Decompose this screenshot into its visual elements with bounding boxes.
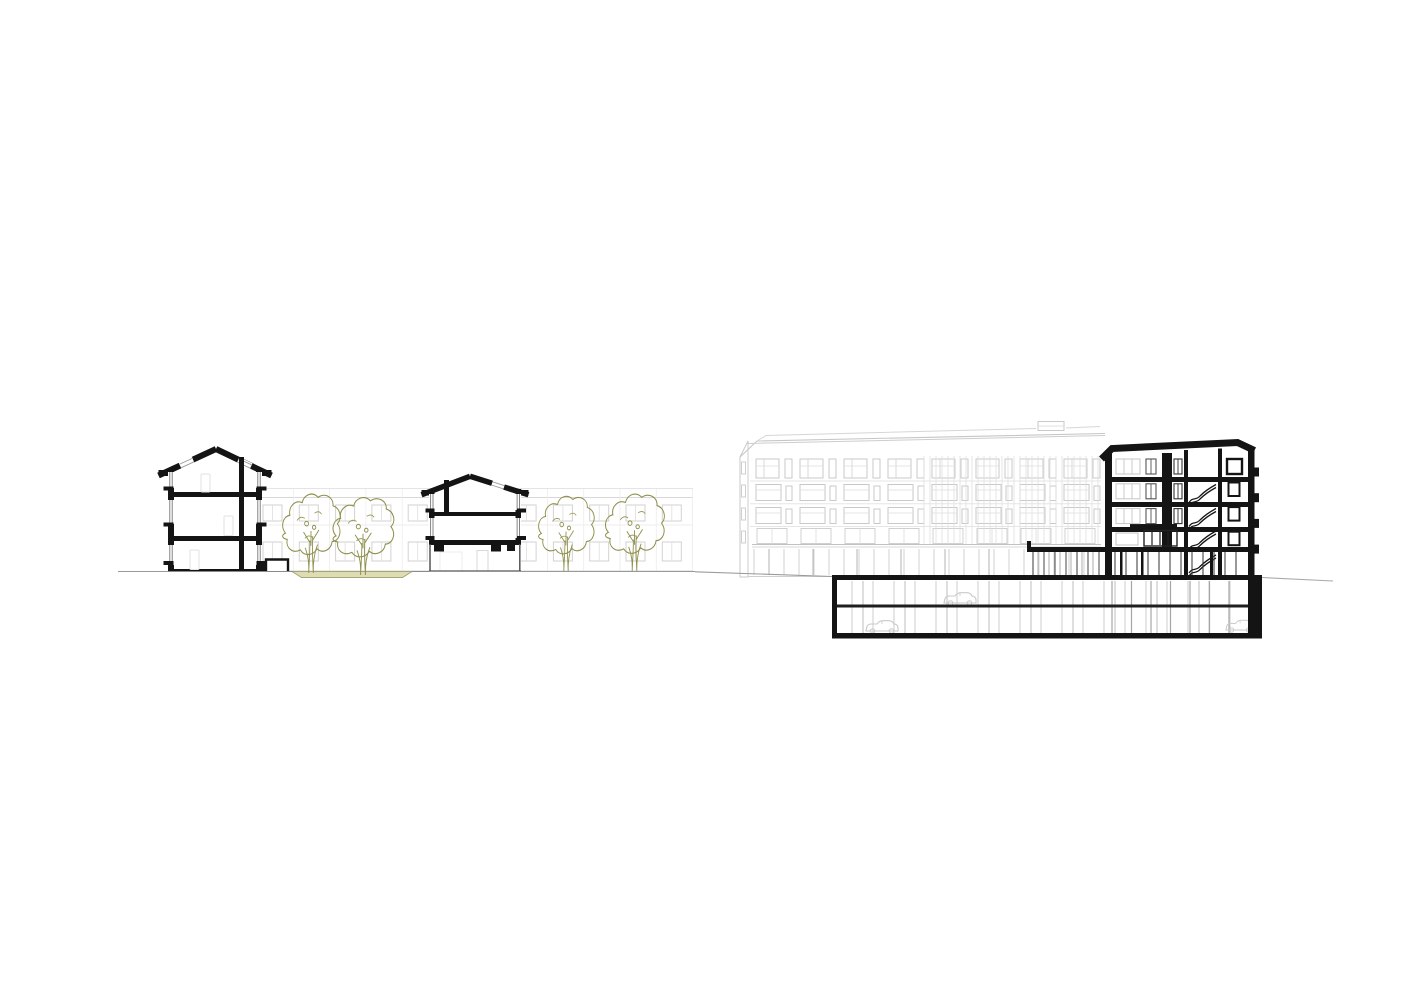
middle-building-slab-stub <box>507 545 515 551</box>
big-building-window-row1-b <box>785 459 792 478</box>
left-building-window-gap <box>256 472 262 488</box>
big-building-window-row3-a <box>1020 508 1045 524</box>
big-building-window-row3-b <box>786 509 792 524</box>
right-building-wall-cut <box>1248 447 1255 638</box>
big-building-window-row3-b <box>1006 509 1012 524</box>
ground-line-right <box>1262 578 1333 582</box>
big-building-window-row2-a <box>844 485 869 501</box>
tree <box>539 496 595 571</box>
middle-building-sill-block <box>426 509 435 513</box>
big-building-window-row2-a <box>800 485 825 501</box>
left-building-interior-wall <box>239 497 244 569</box>
tree-berry <box>567 526 570 530</box>
ground-slope-line <box>695 572 832 577</box>
big-building-window-row3-b <box>830 509 836 524</box>
tree-berry <box>312 525 315 529</box>
left-building-base-slab <box>168 569 262 572</box>
left-building-sill-block <box>164 561 174 565</box>
big-building-window-row2-b <box>918 486 924 501</box>
underground-garage <box>832 576 1262 639</box>
big-building-window-row1-b <box>873 459 880 478</box>
left-building-window-gap <box>168 472 174 488</box>
big-building-window-row2-b <box>1094 486 1100 501</box>
tree <box>606 494 665 571</box>
tree-trunk <box>627 529 643 571</box>
section-drawing <box>0 0 1416 1000</box>
left-building-sill-block <box>257 487 267 491</box>
left-building-sill-block <box>257 523 267 527</box>
big-building-window-row1-a <box>844 459 867 478</box>
middle-building-slab-stub <box>434 545 444 552</box>
big-building-window-row2-b <box>786 486 792 501</box>
stair-core-wall <box>1218 449 1222 578</box>
middle-building-floor-slab <box>429 512 521 516</box>
left-building-section <box>159 449 289 572</box>
right-building-small-window <box>1229 483 1240 497</box>
tree-trunk <box>304 530 319 573</box>
big-building-window-row1-a <box>932 459 955 478</box>
big-building-window-row3-a <box>844 508 869 524</box>
big-building-window-row1-a <box>756 459 779 478</box>
middle-building-interior-wall <box>444 480 449 512</box>
big-building-window-row3-a <box>888 508 913 524</box>
big-building-window-row3-b <box>1050 509 1056 524</box>
big-building-window-row1-b <box>1005 459 1012 478</box>
big-building-window-row3-b <box>962 509 968 524</box>
groundfloor-door-frame <box>1210 552 1213 575</box>
left-building-floor-slab <box>168 536 262 541</box>
big-building-window-row2-b <box>962 486 968 501</box>
big-building-window-row3-a <box>800 508 825 524</box>
big-building-window-row2-b <box>1006 486 1012 501</box>
tree-canopy-scribble <box>348 515 374 541</box>
right-building-topfloor-window <box>1227 459 1242 474</box>
middle-building-section <box>422 476 529 571</box>
garage-mid-slab <box>837 605 1252 608</box>
big-building-window-row3-b <box>918 509 924 524</box>
architectural-section-canvas <box>0 0 1416 1000</box>
big-building-window-row1-a <box>800 459 823 478</box>
big-building-window-row1-b <box>1093 459 1100 478</box>
entrance-stoop <box>266 560 288 572</box>
tree-berry <box>560 522 564 526</box>
right-building-balcony-stub <box>1255 545 1260 554</box>
big-building-window-row2-b <box>874 486 880 501</box>
middle-building-floor-slab <box>429 540 521 545</box>
planter-bed <box>292 572 412 578</box>
big-building-window-row3-b <box>1094 509 1100 524</box>
left-building-interior-wall <box>239 457 244 492</box>
left-building-eave-block <box>262 470 272 476</box>
big-building-window-row1-b <box>917 459 924 478</box>
groundfloor-door-frame <box>1141 552 1144 575</box>
right-building-floor-slab <box>1112 477 1248 482</box>
tree-canopy-scribble <box>620 511 645 537</box>
middle-building-window-gap <box>516 518 522 538</box>
left-building-window-gap <box>256 500 262 524</box>
right-building-balcony-stub <box>1255 468 1260 477</box>
left-building-sill-block <box>164 523 174 527</box>
big-building-window-row2-b <box>830 486 836 501</box>
tree-trunk <box>559 531 574 572</box>
big-building-elevation <box>740 422 1105 578</box>
big-building-roof-ridge <box>1066 427 1100 429</box>
right-building-small-window <box>1229 532 1240 546</box>
big-building-window-row1-a <box>976 459 999 478</box>
right-building-canopy-slab <box>1027 547 1248 552</box>
tree <box>333 498 394 575</box>
big-building-window-row1-a <box>1020 459 1043 478</box>
right-building-small-window <box>1229 507 1240 520</box>
ground-slab-cut <box>832 575 1262 580</box>
big-building-window-row1-b <box>829 459 836 478</box>
middle-building-sill-block <box>426 536 435 540</box>
big-building-window-row1-a <box>1064 459 1087 478</box>
big-building-window-row3-b <box>874 509 880 524</box>
middle-building-sill-block <box>517 509 526 513</box>
right-building-wall-cut <box>1105 453 1112 576</box>
big-building-window-row2-a <box>1020 485 1045 501</box>
middle-building-window-gap <box>429 494 435 510</box>
right-building-core-wall <box>1162 453 1172 547</box>
right-building-balcony-stub <box>1255 493 1260 502</box>
big-building-roof-inner-line <box>757 429 1036 442</box>
big-building-window-row2-b <box>1050 486 1056 501</box>
stair-core-wall <box>1184 450 1188 577</box>
big-building-window-row2-a <box>976 485 1001 501</box>
big-building-window-row3-a <box>976 508 1001 524</box>
left-building-window-gap <box>168 500 174 524</box>
canopy-upstand <box>1027 541 1031 548</box>
left-building-sill-block <box>164 487 174 491</box>
left-building-eave-block <box>159 470 169 476</box>
right-building-balcony-stub <box>1255 519 1260 528</box>
middle-building-slab-stub <box>491 545 501 552</box>
left-building-floor-slab <box>168 492 262 497</box>
middle-building-window-gap <box>429 518 435 538</box>
groundfloor-door-frame <box>1120 552 1123 575</box>
garage-wall <box>832 576 837 638</box>
big-building-window-row3-a <box>756 508 781 524</box>
garage-bottom-slab <box>832 633 1262 639</box>
sunken-planter <box>292 572 412 578</box>
big-building-window-row1-a <box>888 459 911 478</box>
big-building-window-row2-a <box>756 485 781 501</box>
tree-trunk <box>355 533 371 575</box>
big-building-window-row1-b <box>961 459 968 478</box>
big-building-window-row2-a <box>888 485 913 501</box>
middle-building-window-gap <box>516 494 522 510</box>
middle-building-sill-block <box>517 536 526 540</box>
